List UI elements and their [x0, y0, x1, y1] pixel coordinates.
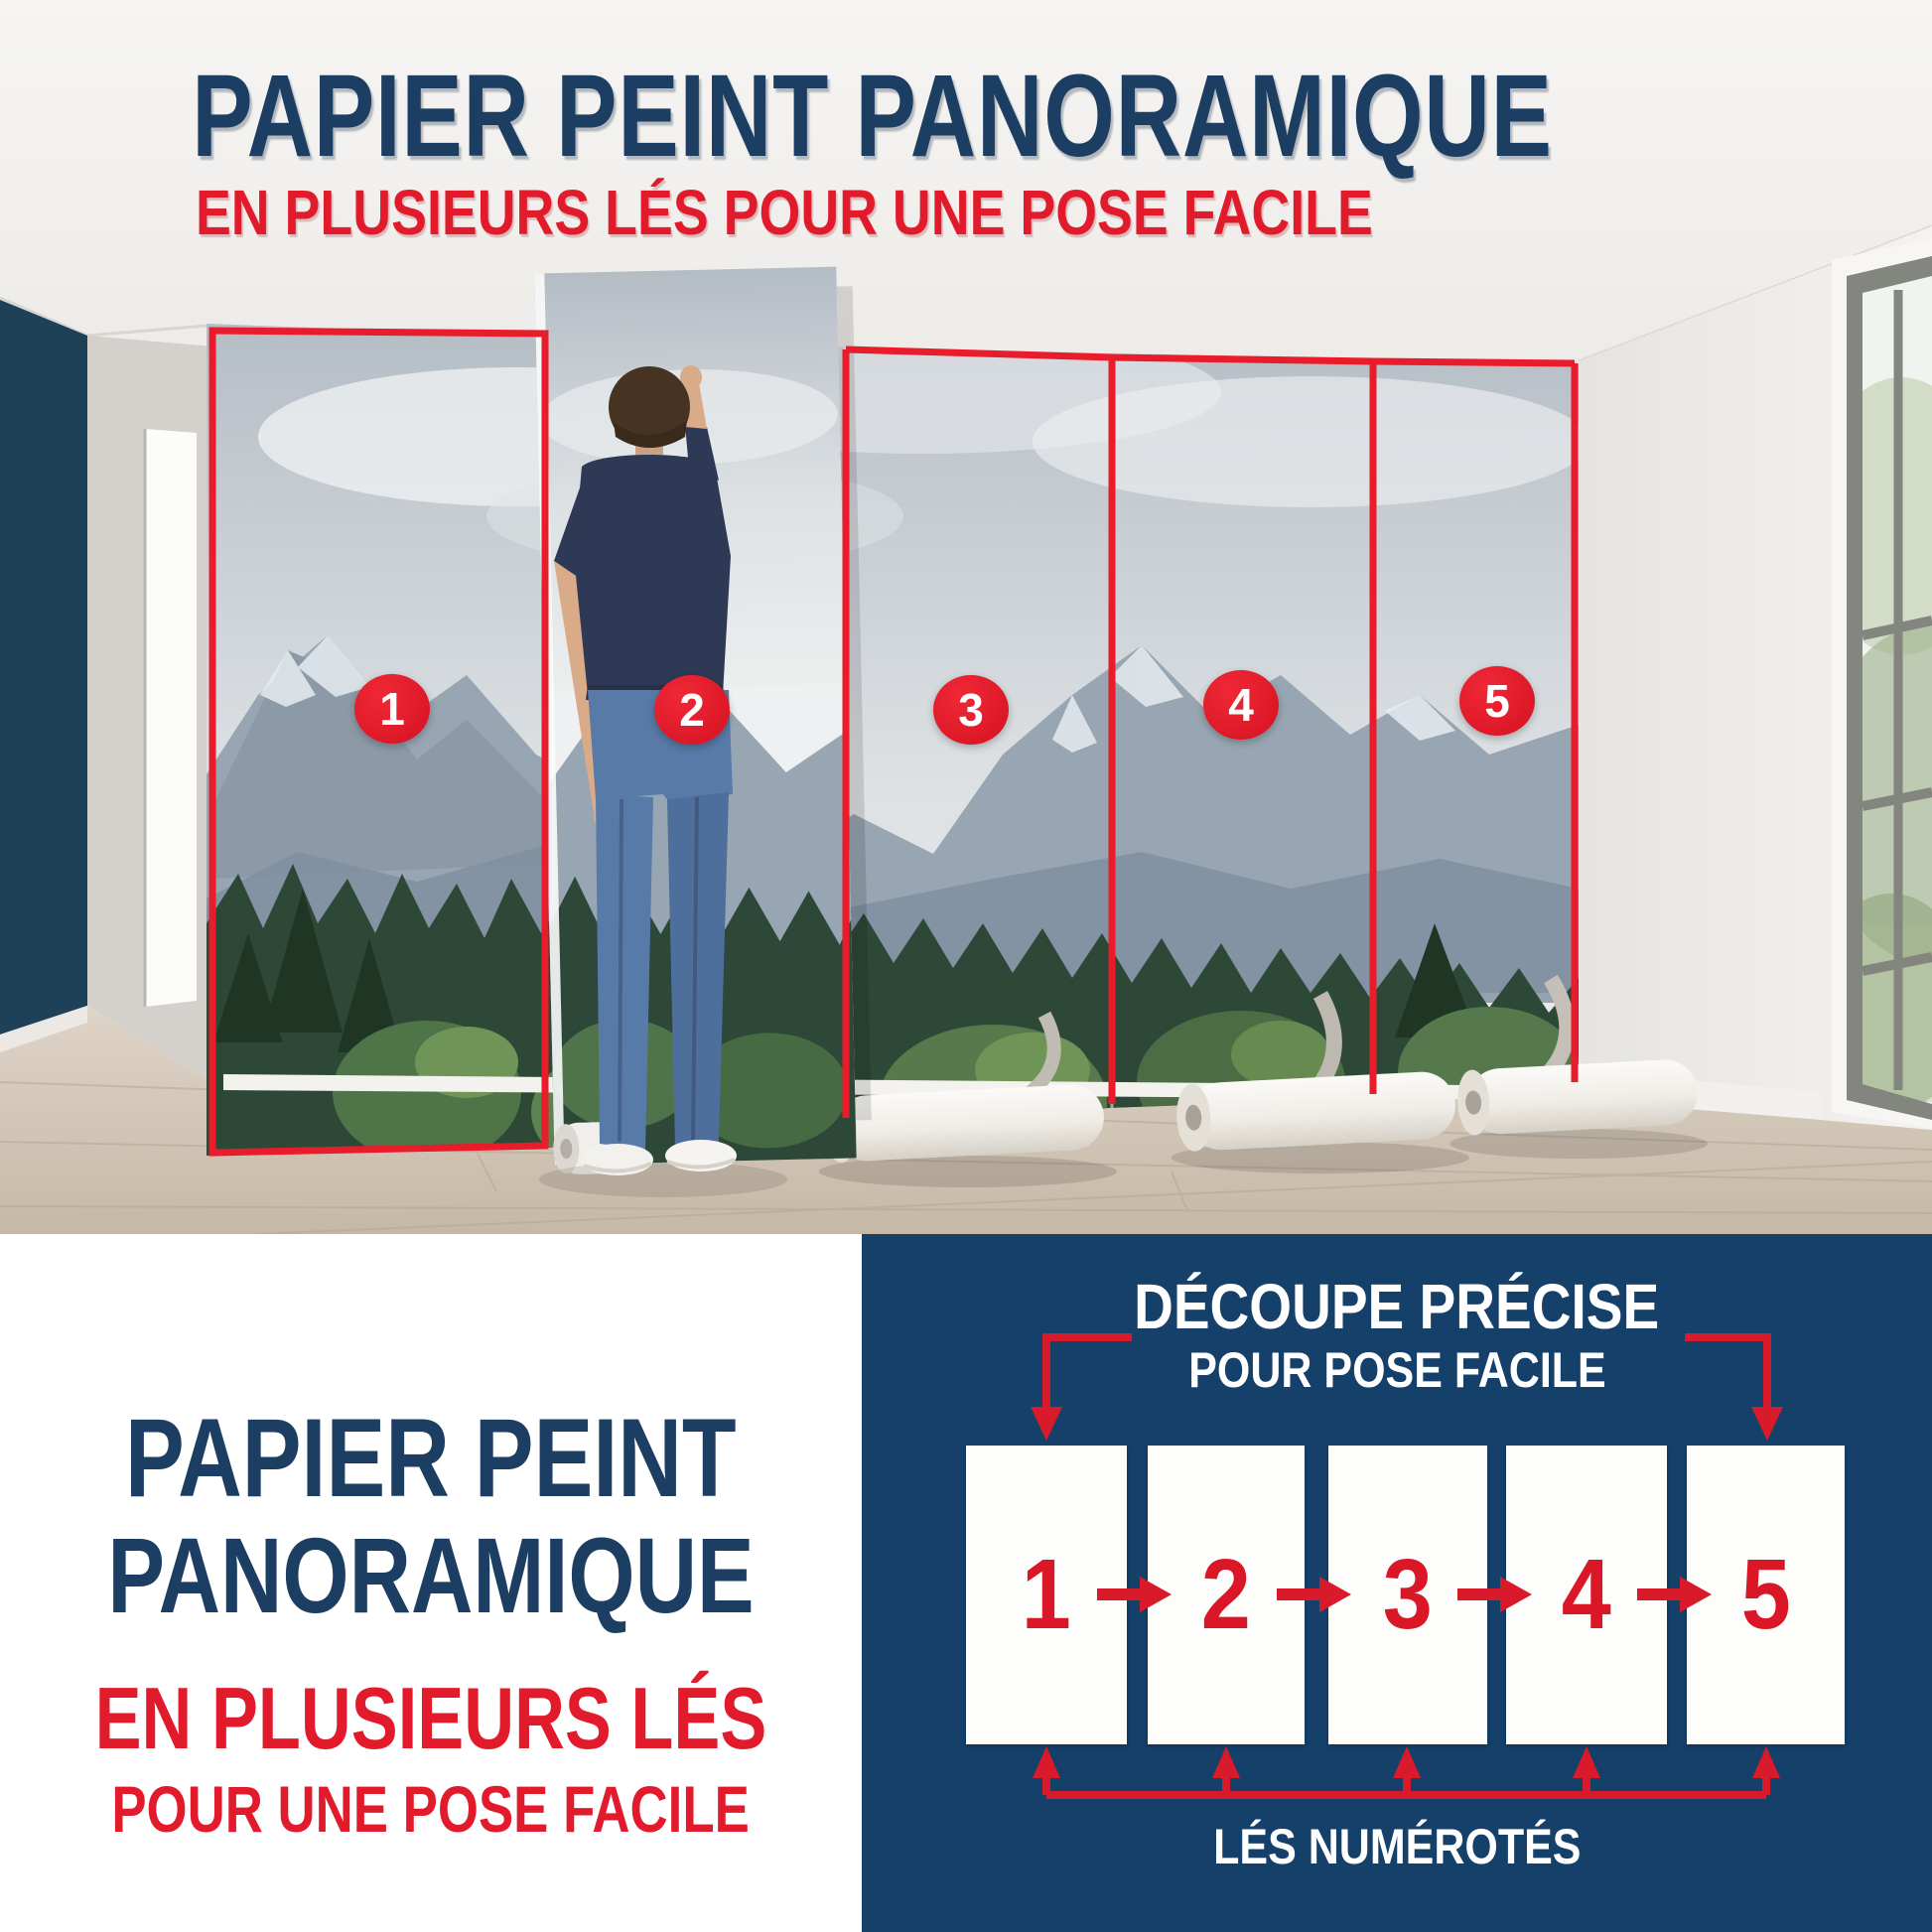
strip-1-badge: 1 [354, 674, 430, 744]
accent-wall [0, 300, 87, 1035]
down-arrow-icon [1031, 1407, 1062, 1441]
diagram-title-line-1: DÉCOUPE PRÉCISE [862, 1270, 1932, 1343]
diagram-footer-label: LÉS NUMÉROTÉS [862, 1818, 1932, 1875]
strip-1-number: 1 [379, 682, 405, 736]
strip-5-badge: 5 [1459, 666, 1535, 736]
strip-3-number: 3 [958, 683, 984, 737]
headline-block: PAPIER PEINT PANORAMIQUE EN PLUSIEURS LÉ… [0, 58, 1569, 244]
diagram-panel: DÉCOUPE PRÉCISE POUR POSE FACILE 1 2 3 4… [862, 1234, 1932, 1932]
photo-section: PAPIER PEINT PANORAMIQUE EN PLUSIEURS LÉ… [0, 0, 1932, 1234]
diagram-strip-3: 3 [1328, 1446, 1487, 1744]
diagram-strip-4: 4 [1506, 1446, 1667, 1744]
strip-4-number: 4 [1228, 678, 1254, 732]
strip-3-badge: 3 [933, 675, 1009, 745]
page-subtitle: EN PLUSIEURS LÉS POUR UNE POSE FACILE [0, 181, 1569, 244]
caption-block: PAPIER PEINT PANORAMIQUE EN PLUSIEURS LÉ… [0, 1234, 862, 1932]
strip-2-badge: 2 [654, 675, 730, 745]
diagram-strip-5: 5 [1687, 1446, 1845, 1744]
diagram-title-line-2: POUR POSE FACILE [862, 1341, 1932, 1399]
bottom-bracket-line [1046, 1775, 1766, 1795]
strip-2-number: 2 [679, 683, 705, 737]
diagram-strip-3-number: 3 [1383, 1538, 1433, 1652]
wallpaper-mural [207, 308, 1588, 1179]
diagram-strip-5-number: 5 [1740, 1538, 1790, 1652]
page-title: PAPIER PEINT PANORAMIQUE [0, 58, 1569, 175]
diagram-strip-2: 2 [1148, 1446, 1305, 1744]
caption-line-1: PAPIER PEINT [0, 1403, 862, 1514]
up-arrow-icon [1033, 1746, 1780, 1778]
caption-line-4: POUR UNE POSE FACILE [0, 1776, 862, 1842]
caption-line-2: PANORAMIQUE [0, 1522, 862, 1629]
strip-5-number: 5 [1484, 674, 1510, 728]
infographic-poster: PAPIER PEINT PANORAMIQUE EN PLUSIEURS LÉ… [0, 0, 1932, 1932]
diagram-strip-1: 1 [966, 1446, 1127, 1744]
diagram-strip-2-number: 2 [1201, 1538, 1251, 1652]
diagram-strip-1-number: 1 [1022, 1538, 1071, 1652]
caption-line-3: EN PLUSIEURS LÉS [0, 1675, 862, 1762]
strip-4-badge: 4 [1203, 670, 1279, 740]
down-arrow-icon [1751, 1407, 1783, 1441]
diagram-strip-4-number: 4 [1562, 1538, 1611, 1652]
door-opening [145, 429, 197, 1007]
